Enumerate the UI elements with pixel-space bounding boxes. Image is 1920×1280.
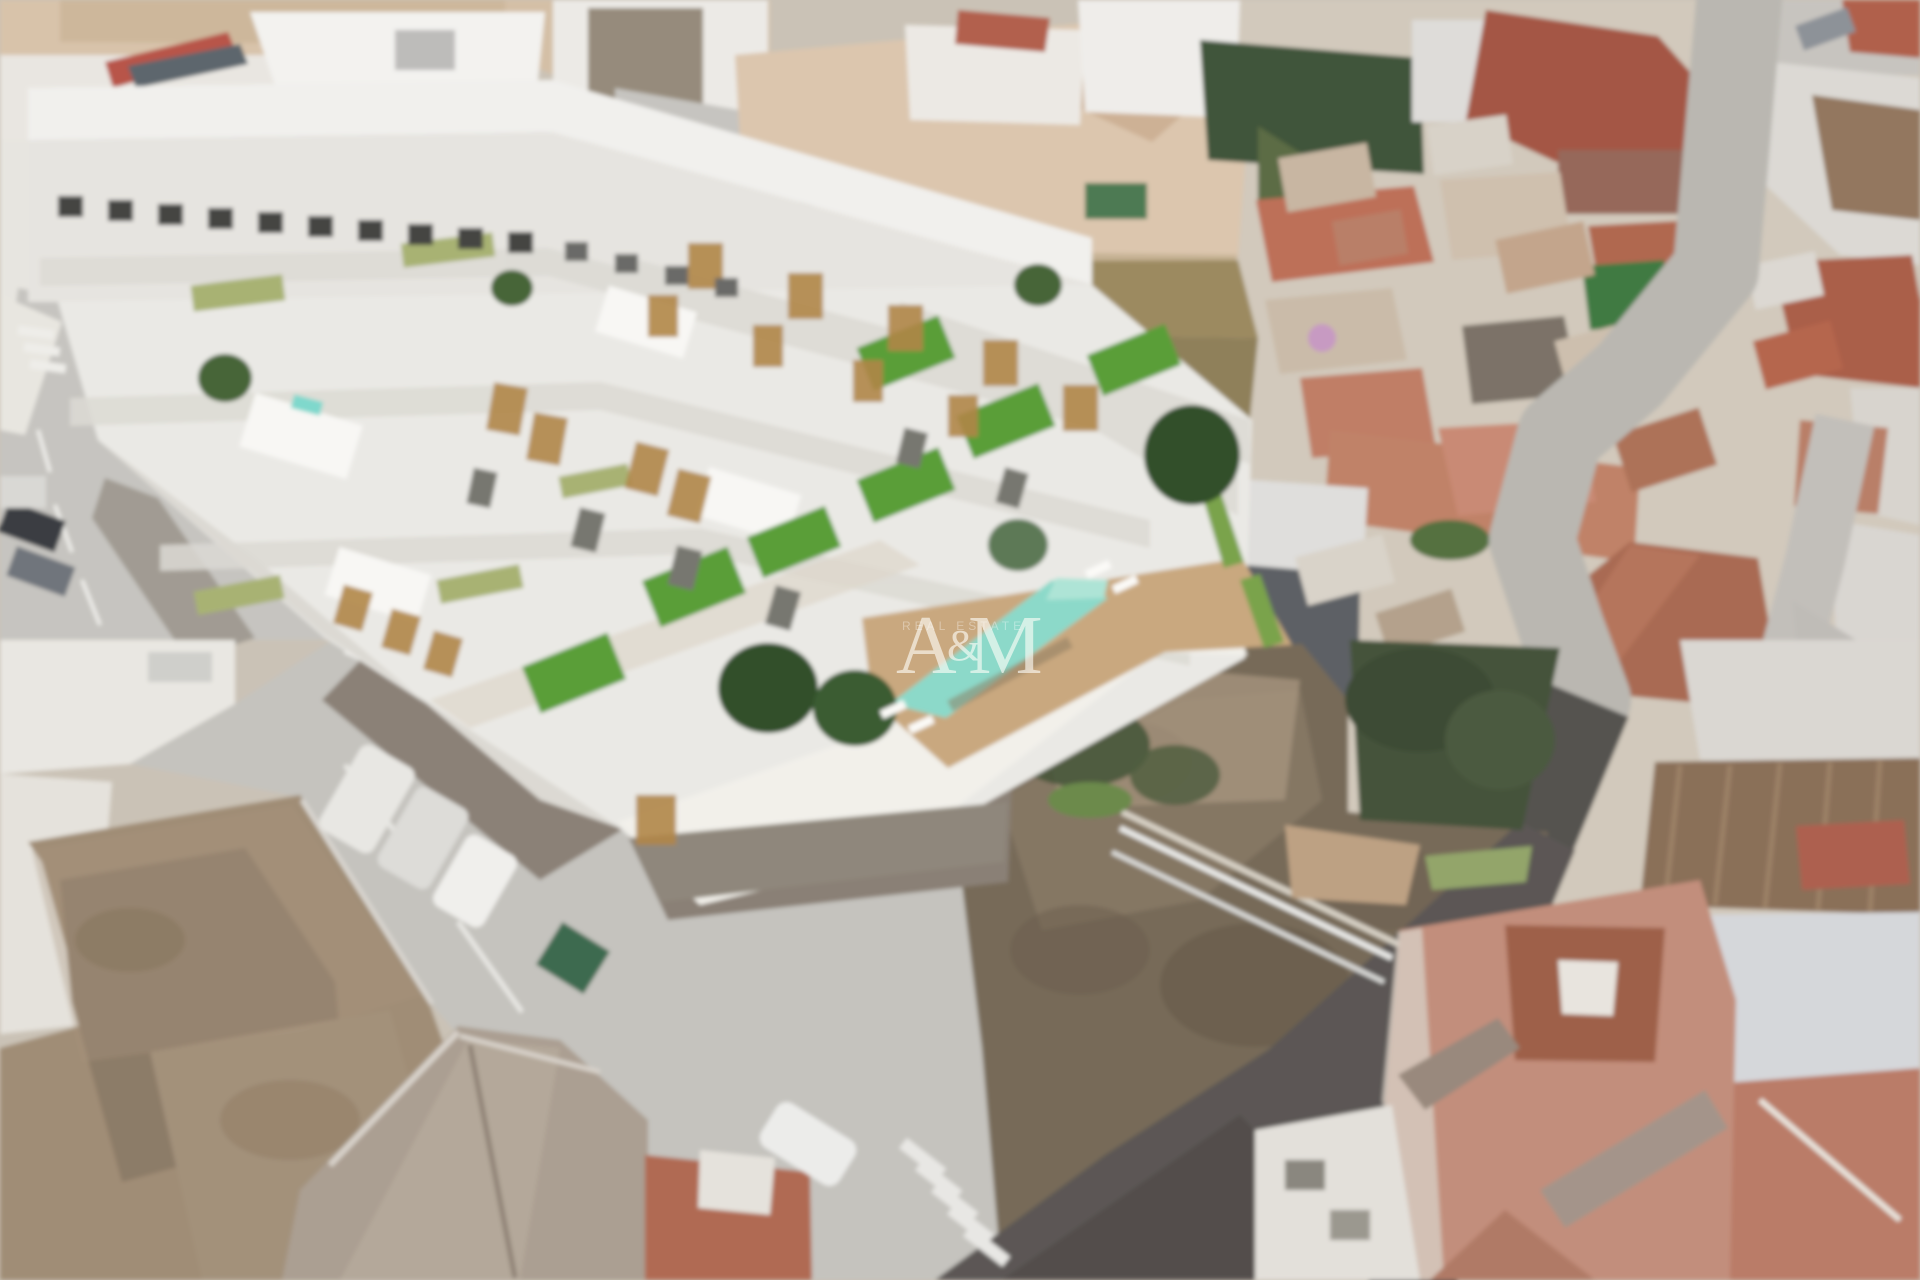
svg-text:M: M xyxy=(968,599,1043,692)
svg-text:REAL ESTATE: REAL ESTATE xyxy=(902,619,1025,633)
